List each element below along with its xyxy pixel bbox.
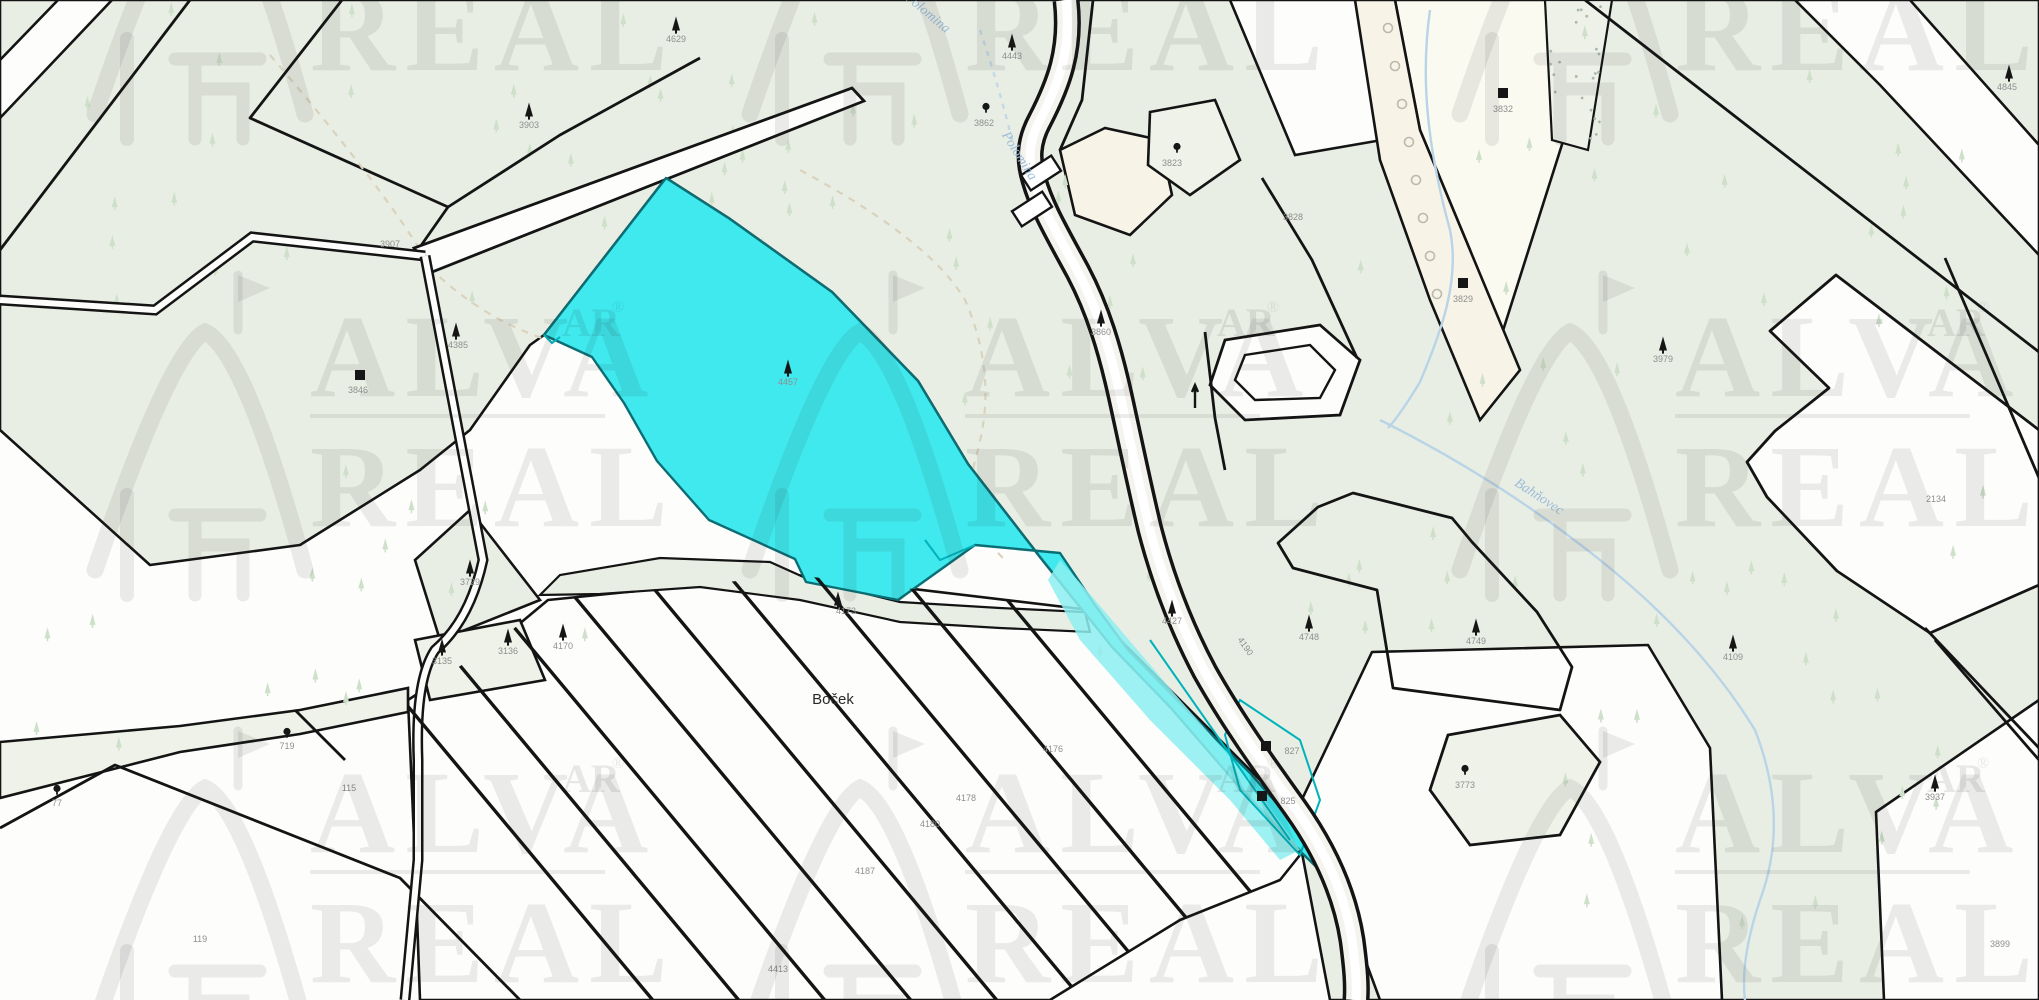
watermark-line2: REAL — [965, 877, 1333, 1000]
parcel-number: 4170 — [553, 641, 573, 651]
speckle-tree — [358, 577, 364, 591]
watermark-line2: REAL — [965, 0, 1333, 96]
parcel-number: 3823 — [1162, 158, 1182, 168]
watermark-line2: REAL — [310, 0, 678, 96]
parcel-number: 3136 — [498, 646, 518, 656]
speckle-tree — [34, 721, 40, 735]
parcel-number: 4180 — [920, 819, 940, 829]
watermark-line2: REAL — [310, 877, 678, 1000]
parcel-number: 3862 — [974, 118, 994, 128]
parcel-number: 4427 — [1162, 616, 1182, 626]
watermark-line2: REAL — [965, 421, 1333, 552]
parcel-number: 4748 — [1299, 632, 1319, 642]
map-svg: 4629444339034845390743853846445738623823… — [0, 0, 2039, 1000]
parcel-number: 4109 — [1723, 652, 1743, 662]
parcel-number: 4457 — [778, 377, 798, 387]
parcel-number: 3907 — [380, 239, 400, 249]
parcel-number: 119 — [193, 934, 207, 944]
watermark-tile: ALVAREALAR® — [95, 731, 678, 1000]
place-label: Boček — [812, 691, 854, 708]
parcel-number: 3979 — [1653, 354, 1673, 364]
speckle-tree — [312, 669, 318, 683]
speckle-tree — [90, 614, 96, 628]
parcel-number: 3903 — [519, 120, 539, 130]
parcel-number: 77 — [52, 798, 62, 808]
building-icon — [1458, 278, 1468, 288]
speckle-tree — [265, 682, 271, 696]
watermark-line2: REAL — [1675, 421, 2039, 552]
parcel-number: 3773 — [1455, 780, 1475, 790]
shrub-icon — [53, 785, 60, 795]
parcel-number: 3729 — [460, 577, 480, 587]
watermark-line2: REAL — [310, 421, 678, 552]
parcel-number: 4173 — [836, 606, 856, 616]
watermark-registered-icon: ® — [612, 755, 624, 772]
watermark-registered-icon: ® — [1267, 299, 1279, 316]
watermark-registered-icon: ® — [612, 299, 624, 316]
watermark-line2: REAL — [1675, 877, 2039, 1000]
watermark-line2: REAL — [1675, 0, 2039, 96]
speckle-tree — [44, 627, 50, 641]
watermark-registered-icon: ® — [1977, 755, 1989, 772]
parcel-number: 4187 — [855, 866, 875, 876]
parcel-number: 719 — [279, 741, 294, 751]
building-icon — [1498, 88, 1508, 98]
watermark-house-icon — [95, 731, 305, 1000]
parcel-number: 4749 — [1466, 636, 1486, 646]
watermark-registered-icon: ® — [1267, 755, 1279, 772]
speckle-tree — [356, 678, 362, 692]
parcel-number: 3828 — [1283, 212, 1303, 222]
parcel-number: 3829 — [1453, 294, 1473, 304]
parcel-number: 3135 — [432, 656, 452, 666]
watermark-registered-icon: ® — [1977, 299, 1989, 316]
cadastral-map-canvas[interactable]: 4629444339034845390743853846445738623823… — [0, 0, 2039, 1000]
